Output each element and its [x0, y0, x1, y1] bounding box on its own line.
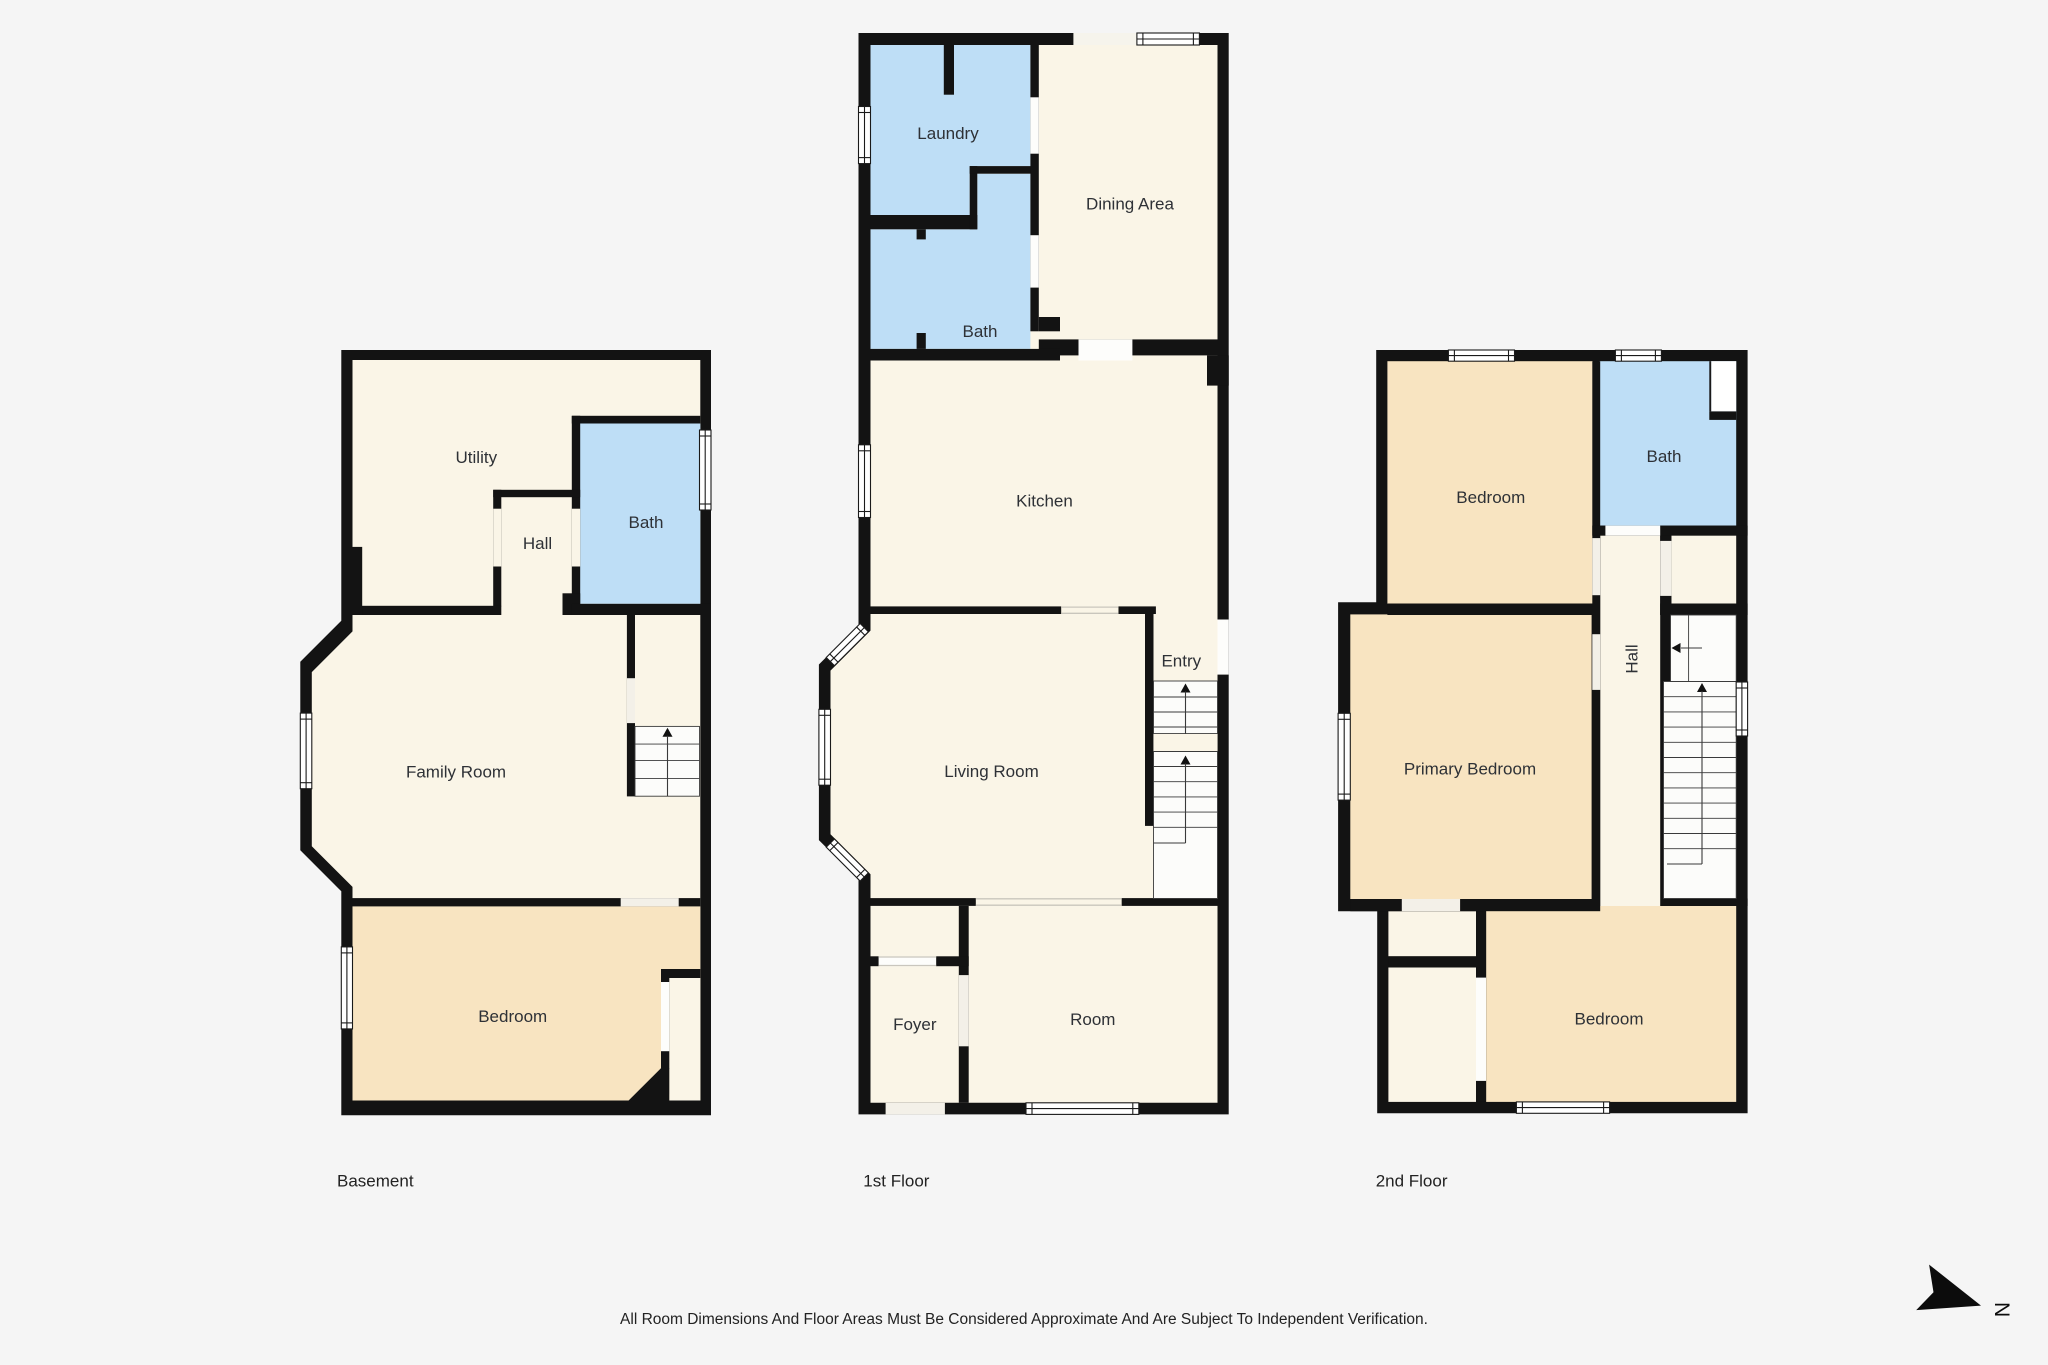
svg-text:Utility: Utility	[456, 448, 498, 467]
svg-text:Bath: Bath	[963, 322, 998, 341]
svg-text:Living Room: Living Room	[944, 762, 1039, 781]
svg-text:Hall: Hall	[1623, 644, 1642, 673]
svg-text:2nd Floor: 2nd Floor	[1376, 1172, 1448, 1191]
svg-text:Family Room: Family Room	[406, 762, 506, 781]
svg-text:Bath: Bath	[1647, 447, 1682, 466]
svg-text:Bath: Bath	[629, 513, 664, 532]
svg-text:Bedroom: Bedroom	[1575, 1010, 1644, 1029]
svg-text:Basement: Basement	[337, 1172, 414, 1191]
svg-text:Kitchen: Kitchen	[1016, 491, 1073, 510]
svg-text:Laundry: Laundry	[917, 124, 979, 143]
svg-text:N: N	[1990, 1302, 2013, 1317]
svg-text:Entry: Entry	[1161, 652, 1201, 671]
svg-text:Room: Room	[1070, 1010, 1115, 1029]
svg-text:Foyer: Foyer	[893, 1015, 937, 1034]
svg-text:Primary Bedroom: Primary Bedroom	[1404, 760, 1536, 779]
svg-text:Dining Area: Dining Area	[1086, 195, 1174, 214]
svg-text:Bedroom: Bedroom	[1456, 488, 1525, 507]
svg-text:Bedroom: Bedroom	[478, 1007, 547, 1026]
svg-text:1st Floor: 1st Floor	[863, 1172, 929, 1191]
svg-text:Hall: Hall	[523, 534, 552, 553]
svg-text:All Room Dimensions And Floor: All Room Dimensions And Floor Areas Must…	[620, 1311, 1428, 1328]
